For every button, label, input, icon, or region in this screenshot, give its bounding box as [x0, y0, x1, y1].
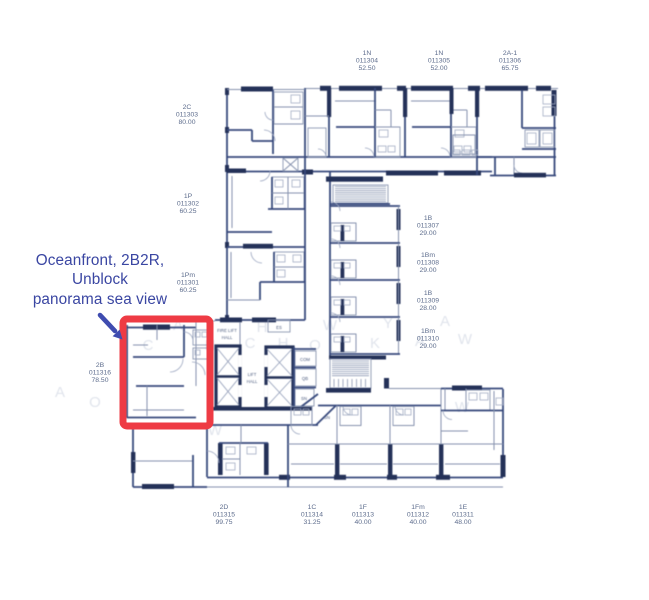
svg-text:Oceanfront, 2B2R,: Oceanfront, 2B2R,	[36, 252, 164, 269]
svg-text:SN: SN	[324, 415, 330, 420]
svg-text:1F01131340.00: 1F01131340.00	[352, 504, 374, 526]
svg-text:QB: QB	[302, 376, 308, 381]
svg-text:O: O	[89, 394, 101, 411]
svg-text:ES: ES	[276, 325, 282, 330]
svg-text:1Fm01131240.00: 1Fm01131240.00	[407, 504, 429, 526]
svg-text:1Bm01131029.00: 1Bm01131029.00	[417, 328, 439, 350]
svg-text:1N01130552.00: 1N01130552.00	[428, 50, 450, 72]
svg-text:2C01130380.00: 2C01130380.00	[176, 104, 198, 126]
svg-text:W: W	[455, 399, 470, 416]
svg-text:K: K	[370, 335, 380, 352]
svg-text:C: C	[245, 335, 256, 352]
svg-text:1E01131148.00: 1E01131148.00	[452, 504, 474, 526]
svg-text:HALL: HALL	[222, 335, 233, 340]
svg-text:1N01130452.50: 1N01130452.50	[356, 50, 378, 72]
svg-text:1B01130729.00: 1B01130729.00	[417, 215, 439, 237]
svg-text:panorama sea view: panorama sea view	[33, 291, 168, 308]
svg-text:1Bm01130829.00: 1Bm01130829.00	[417, 252, 439, 274]
svg-text:1P01130260.25: 1P01130260.25	[177, 193, 199, 215]
svg-text:1B01130928.00: 1B01130928.00	[417, 290, 439, 312]
svg-text:2D01131599.75: 2D01131599.75	[213, 504, 235, 526]
svg-text:1C01131431.25: 1C01131431.25	[301, 504, 323, 526]
svg-text:2A-101130665.75: 2A-101130665.75	[499, 50, 521, 72]
svg-text:COM: COM	[300, 357, 310, 362]
svg-text:FIRE LIFT: FIRE LIFT	[217, 328, 237, 333]
svg-text:2B01131678.50: 2B01131678.50	[89, 362, 111, 384]
svg-text:HALL: HALL	[247, 379, 258, 384]
svg-text:A: A	[55, 384, 65, 401]
svg-text:SN: SN	[301, 396, 307, 401]
svg-text:W: W	[458, 331, 473, 348]
svg-text:Unblock: Unblock	[72, 271, 128, 288]
svg-text:H: H	[278, 335, 289, 352]
svg-text:A: A	[440, 313, 450, 330]
svg-text:O: O	[309, 337, 321, 354]
svg-text:1Pm01130160.25: 1Pm01130160.25	[177, 272, 199, 294]
svg-text:LIFT: LIFT	[248, 372, 257, 377]
